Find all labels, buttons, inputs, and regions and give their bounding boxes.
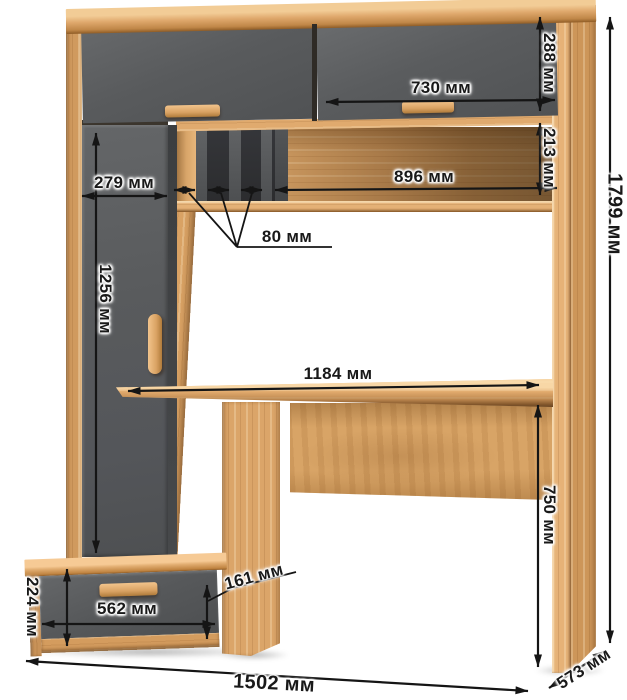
dim-label-open-shelf-height: 213 мм bbox=[539, 128, 559, 188]
dim-label-top-door-width: 730 мм bbox=[411, 78, 471, 98]
dim-label-drawer-width: 562 мм bbox=[97, 599, 157, 619]
dim-label-slot-width: 80 мм bbox=[262, 227, 312, 247]
dim-line-open-shelf-width bbox=[275, 188, 557, 190]
dim-label-desk-height: 750 мм bbox=[539, 485, 559, 545]
furniture-dimension-diagram: 288 мм 730 мм 213 мм 896 мм 279 мм 80 мм… bbox=[0, 0, 627, 700]
dimension-lines bbox=[0, 0, 627, 700]
dim-label-cabinet-door-height: 1256 мм bbox=[95, 264, 115, 334]
dim-line-desktop-width bbox=[128, 385, 539, 391]
dim-label-overall-width: 1502 мм bbox=[233, 670, 316, 697]
slot-leader-3 bbox=[237, 193, 252, 247]
dim-label-drawer-unit-height: 224 мм bbox=[22, 577, 42, 637]
slot-leader-fan bbox=[189, 193, 237, 247]
dim-label-open-shelf-width: 896 мм bbox=[394, 167, 454, 187]
dim-label-overall-height: 1799 мм bbox=[603, 173, 626, 255]
dim-line-top-door-width bbox=[326, 100, 555, 102]
dim-label-cabinet-width: 279 мм bbox=[94, 173, 154, 193]
dim-label-desktop-width: 1184 мм bbox=[304, 364, 373, 384]
dim-label-top-door-height: 288 мм bbox=[539, 33, 559, 93]
